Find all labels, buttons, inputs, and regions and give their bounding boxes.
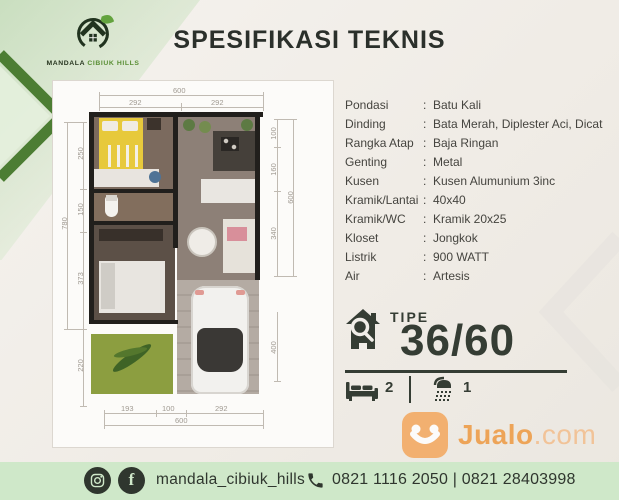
brand-word1: MANDALA [47, 60, 85, 67]
phone-numbers[interactable]: 0821 1116 2050 | 0821 28403998 [332, 471, 576, 489]
wall [173, 112, 178, 248]
dim-label: 160 [269, 163, 278, 176]
jualo-brand: Jualo [458, 419, 534, 450]
floorplan-card: 600 292 292 780 250 150 373 220 100 160 … [52, 80, 334, 448]
spec-value: 40x40 [433, 191, 617, 210]
page-title: SPESIFIKASI TEKNIS [0, 26, 619, 55]
wall [89, 112, 94, 324]
wall [89, 221, 178, 225]
spec-label: Kramik/WC [345, 210, 423, 229]
brand-word2: CIBIUK HILLS [87, 60, 139, 67]
spec-label: Listrik [345, 248, 423, 267]
spec-label: Air [345, 267, 423, 286]
house-magnifier-icon [345, 308, 381, 350]
dim-line [277, 119, 278, 276]
facebook-icon[interactable]: f [118, 467, 145, 494]
dim-label: 373 [76, 272, 85, 285]
spec-row: Kloset:Jongkok [345, 229, 617, 248]
plant [199, 121, 211, 133]
jualo-watermark[interactable]: Jualo.com [402, 412, 596, 458]
sofa [223, 219, 255, 273]
dim-tick [156, 410, 157, 417]
dim-label: 600 [286, 191, 295, 204]
dim-tick [274, 276, 297, 277]
dim-label: 780 [60, 217, 69, 230]
spec-colon: : [423, 229, 433, 248]
dim-tick [274, 381, 281, 382]
spec-list: Pondasi:Batu Kali Dinding:Bata Merah, Di… [345, 96, 617, 286]
spec-row: Genting:Metal [345, 153, 617, 172]
spec-value: Artesis [433, 267, 617, 286]
dim-tick [263, 92, 264, 111]
spec-value: Jongkok [433, 229, 617, 248]
dim-tick [263, 410, 264, 429]
jualo-wordmark: Jualo.com [458, 419, 596, 451]
wall [89, 320, 178, 324]
spec-label: Kusen [345, 172, 423, 191]
plant [241, 119, 253, 131]
stove [221, 137, 239, 151]
jualo-suffix: .com [534, 419, 597, 450]
dim-label: 600 [175, 416, 188, 425]
dim-tick [64, 329, 87, 330]
desk-chair [149, 171, 161, 183]
spec-label: Pondasi [345, 96, 423, 115]
dim-tick [64, 122, 87, 123]
spec-row: Kramik/WC:Kramik 20x25 [345, 210, 617, 229]
tipe-divider [345, 370, 567, 373]
spec-label: Rangka Atap [345, 134, 423, 153]
spec-colon: : [423, 115, 433, 134]
spec-row: Air:Artesis [345, 267, 617, 286]
dim-tick [274, 119, 297, 120]
wall [255, 112, 260, 280]
spec-row: Rangka Atap:Baja Ringan [345, 134, 617, 153]
flyer-page: MANDALA CIBIUK HILLS SPESIFIKASI TEKNIS [0, 0, 619, 500]
bedroom-count: 2 [385, 379, 393, 396]
spec-row: Dinding:Bata Merah, Diplester Aci, Dicat [345, 115, 617, 134]
spec-value: Bata Merah, Diplester Aci, Dicat [433, 115, 617, 134]
dim-tick [80, 189, 87, 190]
sofa-cushion [227, 227, 247, 241]
wardrobe [99, 229, 163, 241]
plant [183, 119, 195, 131]
spec-colon: : [423, 153, 433, 172]
dim-label: 292 [129, 98, 142, 107]
dim-tick [80, 406, 87, 407]
dim-tick [99, 92, 100, 111]
bathroom-count: 1 [463, 379, 471, 396]
spec-row: Kusen:Kusen Alumunium 3inc [345, 172, 617, 191]
dim-label: 100 [162, 404, 175, 413]
tipe-value: 36/60 [400, 316, 515, 366]
spec-value: 900 WATT [433, 248, 617, 267]
dim-label: 600 [173, 86, 186, 95]
instagram-icon[interactable] [84, 467, 111, 494]
bed-white [99, 261, 165, 313]
spec-value: Batu Kali [433, 96, 617, 115]
spec-colon: : [423, 191, 433, 210]
spec-value: Baja Ringan [433, 134, 617, 153]
dim-tick [104, 410, 105, 429]
spec-value: Kramik 20x25 [433, 210, 617, 229]
spec-colon: : [423, 210, 433, 229]
dim-label: 100 [269, 127, 278, 140]
dim-tick [274, 191, 281, 192]
bed-icon [345, 380, 379, 404]
spec-label: Genting [345, 153, 423, 172]
spec-colon: : [423, 172, 433, 191]
brand-name: MANDALA CIBIUK HILLS [28, 60, 158, 67]
nightstand [147, 118, 161, 130]
car [191, 286, 249, 394]
spec-value: Metal [433, 153, 617, 172]
dim-label: 250 [76, 147, 85, 160]
spec-colon: : [423, 96, 433, 115]
car-taillight [195, 290, 204, 295]
social-handle[interactable]: mandala_cibiuk_hills [156, 471, 305, 489]
amenity-separator [409, 376, 411, 403]
wall [89, 189, 178, 193]
car-windshield [197, 328, 243, 372]
spec-label: Dinding [345, 115, 423, 134]
dim-label: 193 [121, 404, 134, 413]
dim-label: 220 [76, 359, 85, 372]
bed-yellow [99, 118, 143, 170]
jualo-smile-icon [402, 412, 448, 458]
dim-tick [181, 103, 182, 111]
dim-line [104, 413, 263, 414]
dim-line [99, 95, 263, 96]
spec-label: Kloset [345, 229, 423, 248]
kitchen-island [201, 179, 255, 203]
car-taillight [236, 290, 245, 295]
phone-icon [306, 471, 325, 490]
toilet [105, 195, 118, 217]
shower-icon [428, 376, 456, 404]
dim-tick [274, 147, 281, 148]
spec-colon: : [423, 248, 433, 267]
spec-row: Pondasi:Batu Kali [345, 96, 617, 115]
spec-value: Kusen Alumunium 3inc [433, 172, 617, 191]
spec-colon: : [423, 134, 433, 153]
spec-row: Listrik:900 WATT [345, 248, 617, 267]
dim-label: 292 [215, 404, 228, 413]
dim-line [104, 425, 263, 426]
spec-label: Kramik/Lantai [345, 191, 423, 210]
spec-row: Kramik/Lantai:40x40 [345, 191, 617, 210]
dim-label: 292 [211, 98, 224, 107]
dim-label: 340 [269, 227, 278, 240]
coffee-table [187, 227, 217, 257]
spec-colon: : [423, 267, 433, 286]
dim-tick [80, 232, 87, 233]
facebook-glyph: f [129, 470, 135, 490]
dim-label: 400 [269, 341, 278, 354]
dim-label: 150 [76, 203, 85, 216]
